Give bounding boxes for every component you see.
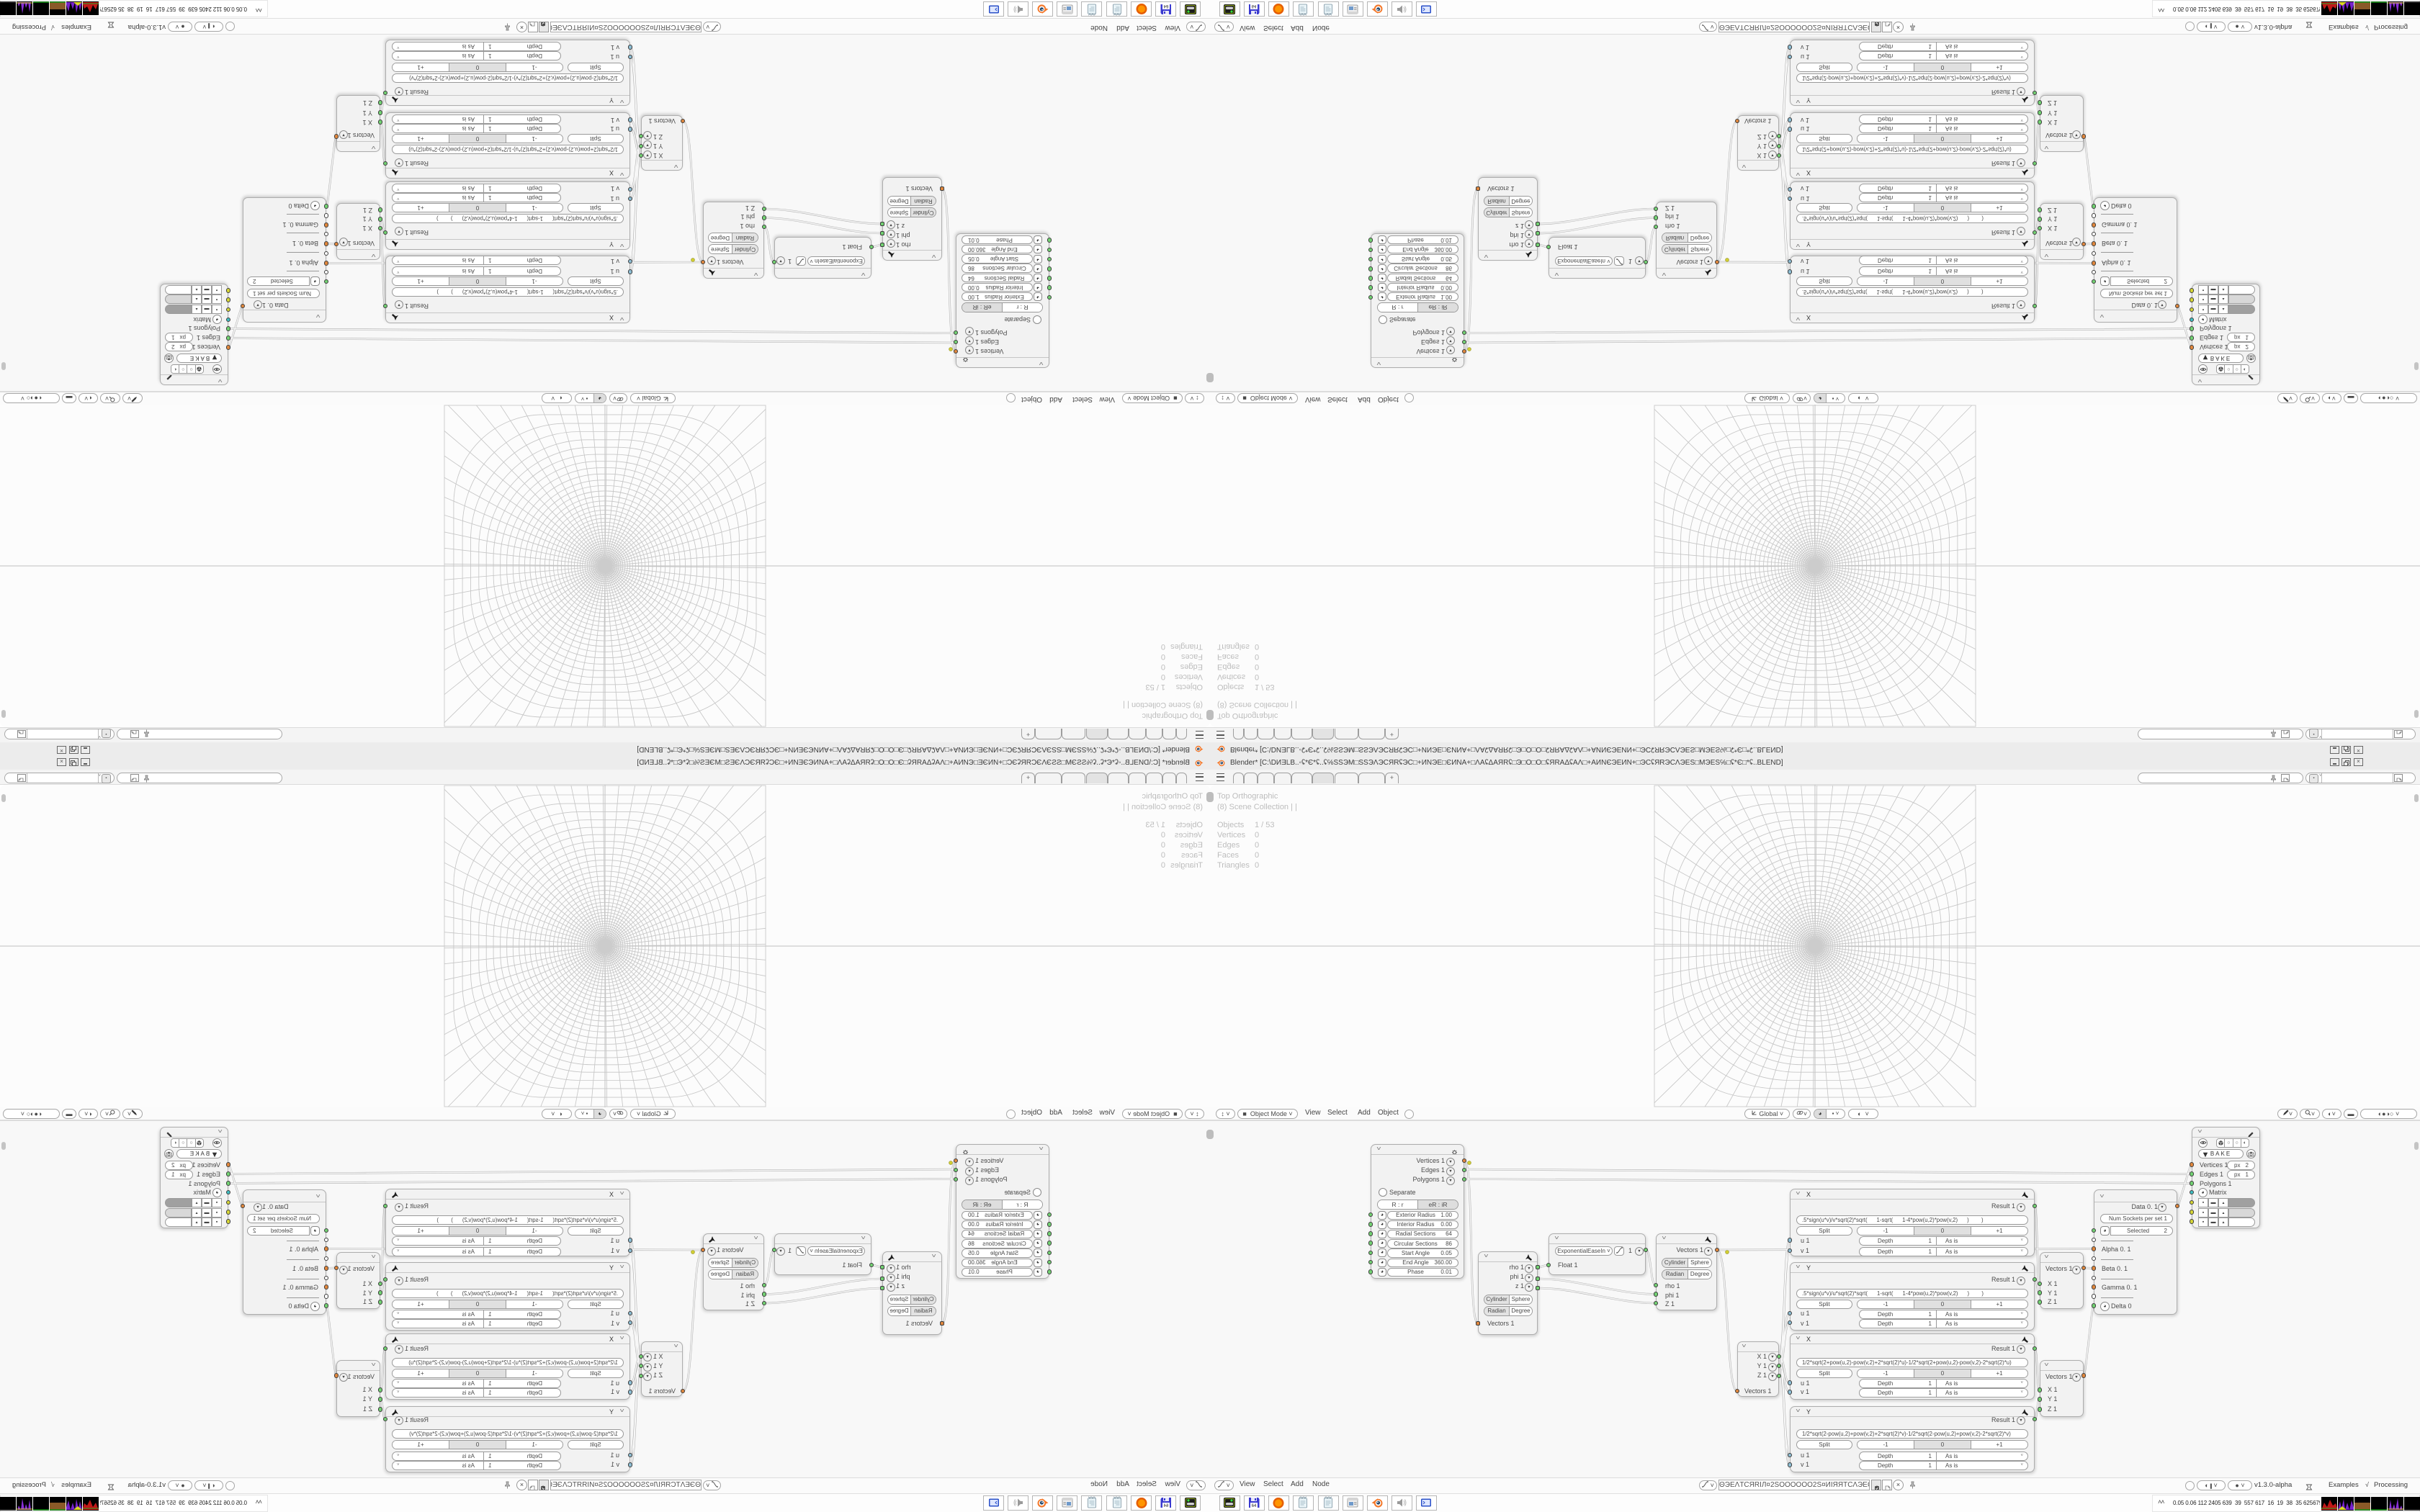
svg-text:64: 64	[1163, 4, 1168, 8]
svg-text:64: 64	[1252, 1504, 1257, 1508]
svg-text:64: 64	[1163, 1504, 1168, 1508]
svg-text:64: 64	[1252, 4, 1257, 8]
